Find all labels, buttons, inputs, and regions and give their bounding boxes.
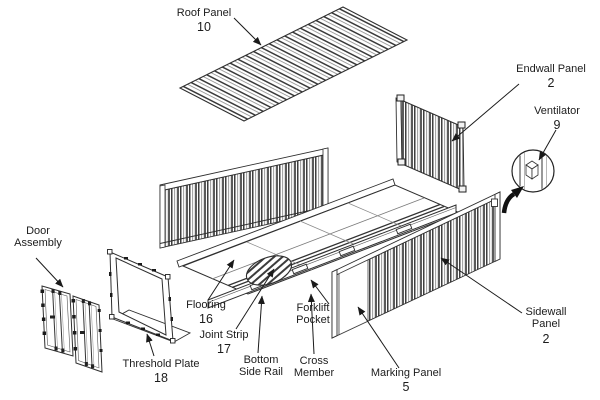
leader-endwall-panel — [452, 84, 519, 141]
corner-fitting — [397, 95, 404, 101]
part-name: Joint Strip — [200, 329, 249, 341]
part-number: 18 — [122, 371, 199, 385]
corner-fitting — [398, 159, 405, 165]
label-door-assembly: Door Assembly — [14, 225, 62, 250]
part-name: Flooring — [186, 299, 226, 311]
label-flooring: Flooring 16 — [186, 299, 226, 326]
door-leaf-left — [41, 286, 74, 356]
label-marking-panel: Marking Panel 5 — [371, 367, 441, 394]
ventilator-location-mark — [492, 199, 498, 207]
part-name: Sidewall — [526, 306, 567, 318]
door-handle — [50, 316, 55, 319]
door-leaf-right — [72, 296, 103, 372]
label-threshold-plate: Threshold Plate 18 — [122, 358, 199, 385]
label-joint-strip: Joint Strip 17 — [200, 329, 249, 356]
part-name: Bottom — [239, 354, 283, 366]
label-bottom-side-rail: Bottom Side Rail — [239, 354, 283, 379]
part-name: Marking Panel — [371, 367, 441, 379]
part-name: Threshold Plate — [122, 358, 199, 370]
part-name: Assembly — [14, 237, 62, 249]
part-name: Endwall Panel — [516, 63, 586, 75]
leader-threshold-plate — [147, 334, 154, 356]
label-roof-panel: Roof Panel 10 — [177, 7, 231, 34]
diagram-canvas: Roof Panel 10 Endwall Panel 2 Ventilator… — [0, 0, 600, 400]
part-name: Cross — [294, 355, 334, 367]
part-name: Panel — [526, 318, 567, 330]
label-sidewall-panel: Sidewall Panel 2 — [526, 306, 567, 346]
leader-bottom-side-rail — [258, 296, 262, 353]
part-number: 2 — [526, 332, 567, 346]
part-name: Forklift — [296, 302, 330, 314]
ventilator-pointer-arrow — [504, 186, 524, 213]
leader-forklift-pocket — [311, 280, 329, 304]
part-name: Member — [294, 367, 334, 379]
part-name: Ventilator — [534, 105, 580, 117]
ventilator-detail-circle — [512, 150, 554, 192]
part-number: 16 — [186, 312, 226, 326]
label-forklift-pocket: Forklift Pocket — [296, 302, 330, 327]
label-endwall-panel: Endwall Panel 2 — [516, 63, 586, 90]
label-ventilator: Ventilator 9 — [534, 105, 580, 132]
corner-fitting — [459, 186, 466, 192]
leader-door-assembly — [36, 258, 63, 287]
part-name: Pocket — [296, 314, 330, 326]
part-name: Side Rail — [239, 366, 283, 378]
endwall-panel-shape — [396, 95, 466, 192]
part-number: 2 — [516, 76, 586, 90]
ventilator-box — [526, 161, 538, 179]
door-handle — [80, 331, 85, 334]
label-cross-member: Cross Member — [294, 355, 334, 380]
leader-roof-panel — [234, 18, 261, 45]
corner-fitting — [458, 122, 465, 128]
part-number: 5 — [371, 380, 441, 394]
exploded-view-drawing — [0, 0, 600, 400]
part-name: Roof Panel — [177, 7, 231, 19]
part-number: 9 — [534, 118, 580, 132]
part-number: 10 — [177, 20, 231, 34]
part-name: Door — [14, 225, 62, 237]
